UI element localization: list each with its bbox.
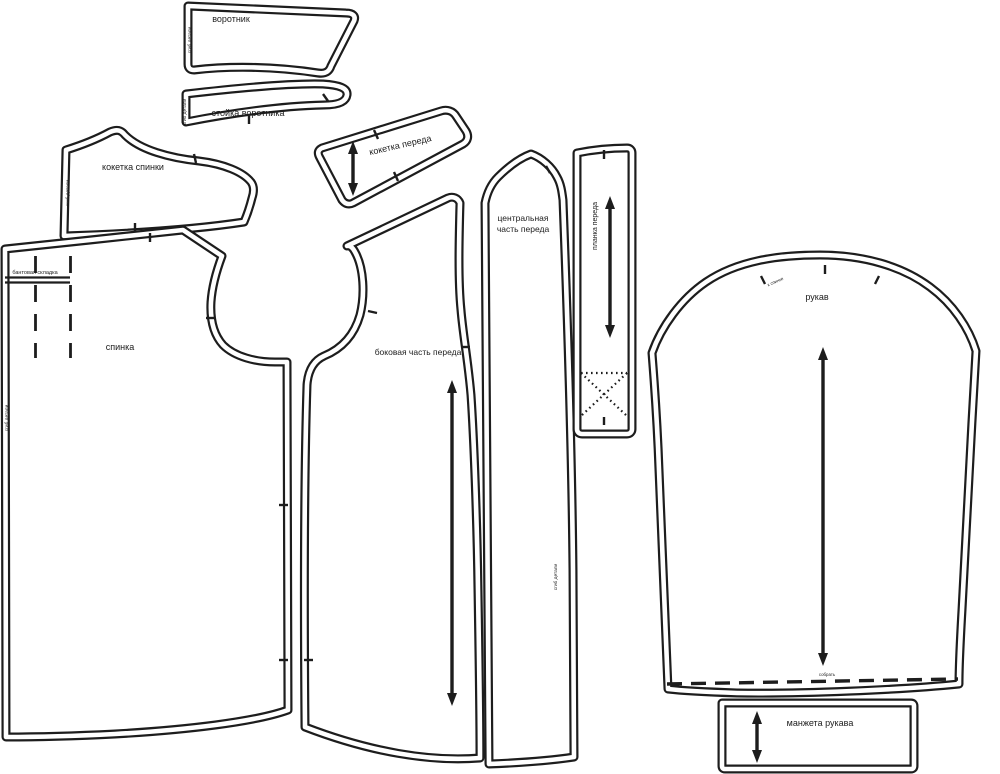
piece-sleeve xyxy=(652,255,976,693)
piece-placket xyxy=(577,148,632,434)
piece-back-yoke xyxy=(64,130,253,236)
sleeve-label: рукав xyxy=(805,292,829,302)
cuff-outline-outer xyxy=(722,703,914,769)
center-front-outline-outer xyxy=(485,154,574,764)
piece-front-yoke xyxy=(318,110,467,204)
back-yoke-fold-note: сгиб детали xyxy=(65,179,71,206)
piece-back xyxy=(5,230,288,737)
sleeve-outline-outer xyxy=(652,255,976,693)
center-front-fold-note: сгиб детали xyxy=(553,563,559,590)
collar-label: воротник xyxy=(212,14,250,24)
piece-cuff xyxy=(722,703,914,769)
collar-stand-fold-note: сгиб детали xyxy=(182,98,188,125)
center-front-label-line1: центральная xyxy=(498,213,549,223)
back-label: спинка xyxy=(106,342,135,352)
side-front-label: боковая часть переда xyxy=(375,347,462,357)
back-outline-outer xyxy=(5,230,288,737)
collar-fold-note: сгиб детали xyxy=(187,26,193,53)
pattern-canvas: воротник стойка воротника кокетка спинки… xyxy=(0,0,1000,774)
collar-stand-label: стойка воротника xyxy=(212,108,285,118)
back-yoke-label: кокетка спинки xyxy=(102,162,164,172)
cuff-label: манжета рукава xyxy=(787,718,854,728)
back-yoke-outline-outer xyxy=(64,130,253,236)
box-pleat-label: бантовая складка xyxy=(12,270,58,276)
sewing-pattern-sheet: воротник стойка воротника кокетка спинки… xyxy=(0,0,1000,774)
placket-outline-outer xyxy=(577,148,632,434)
sleeve-hem-note: собрать xyxy=(819,672,836,677)
center-front-label-line2: часть переда xyxy=(497,224,550,234)
piece-center-front xyxy=(485,154,574,764)
back-fold-note: сгиб детали xyxy=(4,404,10,431)
placket-label: планка переда xyxy=(592,202,599,250)
